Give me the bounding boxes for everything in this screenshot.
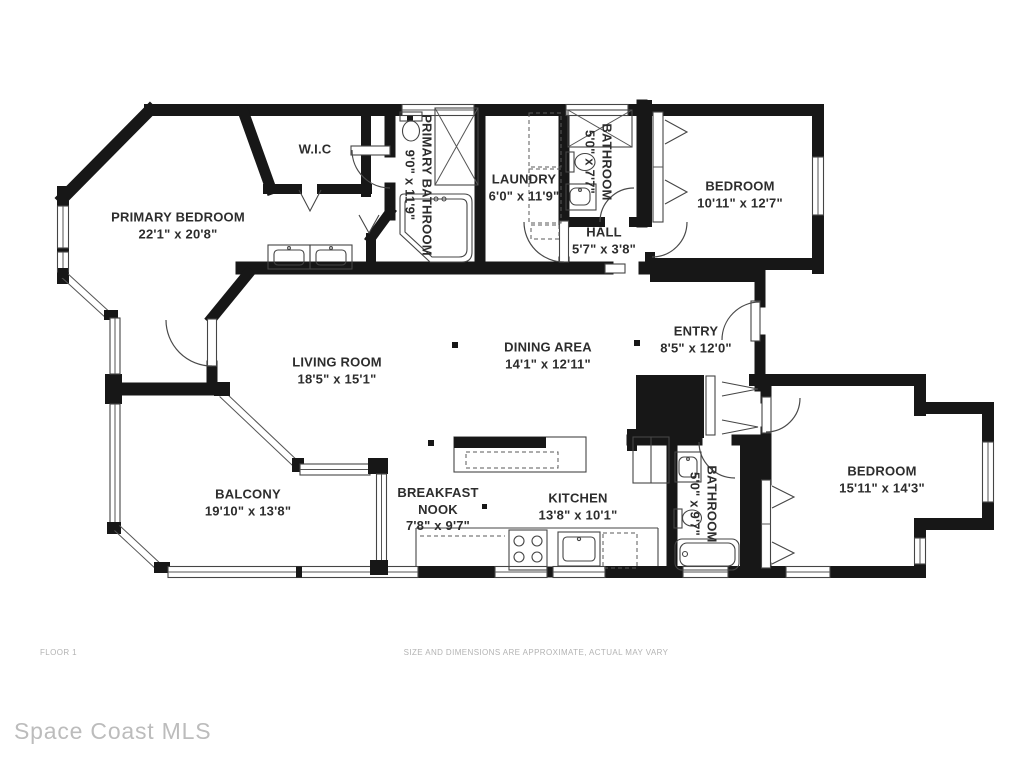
- floorplan-page: .w{stroke:#171717;fill:none;stroke-linec…: [0, 0, 1024, 768]
- kitchen-sink: [558, 532, 600, 566]
- room-name: PRIMARY BEDROOM: [111, 209, 245, 226]
- room-name: BREAKFAST NOOK: [388, 485, 488, 518]
- room-dims: 13'8" x 10'1": [539, 507, 618, 524]
- room-dims: 6'0" x 11'9": [489, 188, 560, 205]
- room-name: BATHROOM: [598, 123, 615, 200]
- room-label-primary-bathroom: PRIMARY BATHROOM 9'0" x 11'9": [401, 114, 434, 256]
- room-name: W.I.C: [299, 142, 332, 159]
- room-label-primary-bedroom: PRIMARY BEDROOM 22'1" x 20'8": [111, 209, 245, 242]
- room-name: BATHROOM: [703, 465, 720, 542]
- room-label-wic: W.I.C: [299, 142, 332, 159]
- room-dims: 5'7" x 3'8": [572, 241, 636, 258]
- room-label-dining-area: DINING AREA 14'1" x 12'11": [504, 339, 592, 372]
- room-name: BEDROOM: [697, 178, 783, 195]
- room-name: BALCONY: [205, 486, 291, 503]
- room-name: LIVING ROOM: [292, 354, 382, 371]
- room-label-balcony: BALCONY 19'10" x 13'8": [205, 486, 291, 519]
- room-dims: 7'8" x 9'7": [388, 518, 488, 535]
- room-label-bathroom-top: BATHROOM 5'0" x 7'7": [581, 123, 614, 200]
- bathtub: [675, 539, 739, 570]
- room-name: KITCHEN: [539, 490, 618, 507]
- room-label-bedroom-top: BEDROOM 10'11" x 12'7": [697, 178, 783, 211]
- room-label-breakfast-nook: BREAKFAST NOOK 7'8" x 9'7": [388, 485, 488, 535]
- room-label-bathroom-bottom: BATHROOM 5'0" x 9'7": [686, 465, 719, 542]
- room-label-hall: HALL 5'7" x 3'8": [572, 224, 636, 257]
- room-dims: 5'0" x 7'7": [581, 123, 598, 200]
- room-name: BEDROOM: [839, 463, 925, 480]
- room-dims: 8'5" x 12'0": [660, 340, 732, 357]
- stove: [509, 530, 547, 570]
- room-name: HALL: [572, 224, 636, 241]
- mls-watermark: Space Coast MLS: [14, 718, 211, 745]
- room-label-kitchen: KITCHEN 13'8" x 10'1": [539, 490, 618, 523]
- room-dims: 15'11" x 14'3": [839, 480, 925, 497]
- room-dims: 9'0" x 11'9": [401, 114, 418, 256]
- room-label-living-room: LIVING ROOM 18'5" x 15'1": [292, 354, 382, 387]
- vanity-sinks: [268, 245, 352, 269]
- shower: [435, 108, 478, 185]
- room-dims: 10'11" x 12'7": [697, 195, 783, 212]
- room-name: LAUNDRY: [489, 171, 560, 188]
- room-dims: 14'1" x 12'11": [504, 356, 592, 373]
- room-label-entry: ENTRY 8'5" x 12'0": [660, 323, 732, 356]
- room-label-laundry: LAUNDRY 6'0" x 11'9": [489, 171, 560, 204]
- room-label-bedroom-bottom: BEDROOM 15'11" x 14'3": [839, 463, 925, 496]
- kitchen-island: [454, 437, 586, 472]
- room-name: ENTRY: [660, 323, 732, 340]
- room-dims: 5'0" x 9'7": [686, 465, 703, 542]
- room-dims: 22'1" x 20'8": [111, 226, 245, 243]
- dishwasher: [603, 533, 637, 568]
- room-dims: 18'5" x 15'1": [292, 371, 382, 388]
- floor-label: FLOOR 1: [40, 648, 77, 657]
- room-name: PRIMARY BATHROOM: [418, 114, 435, 256]
- disclaimer-text: SIZE AND DIMENSIONS ARE APPROXIMATE, ACT…: [404, 648, 669, 657]
- room-dims: 19'10" x 13'8": [205, 503, 291, 520]
- room-name: DINING AREA: [504, 339, 592, 356]
